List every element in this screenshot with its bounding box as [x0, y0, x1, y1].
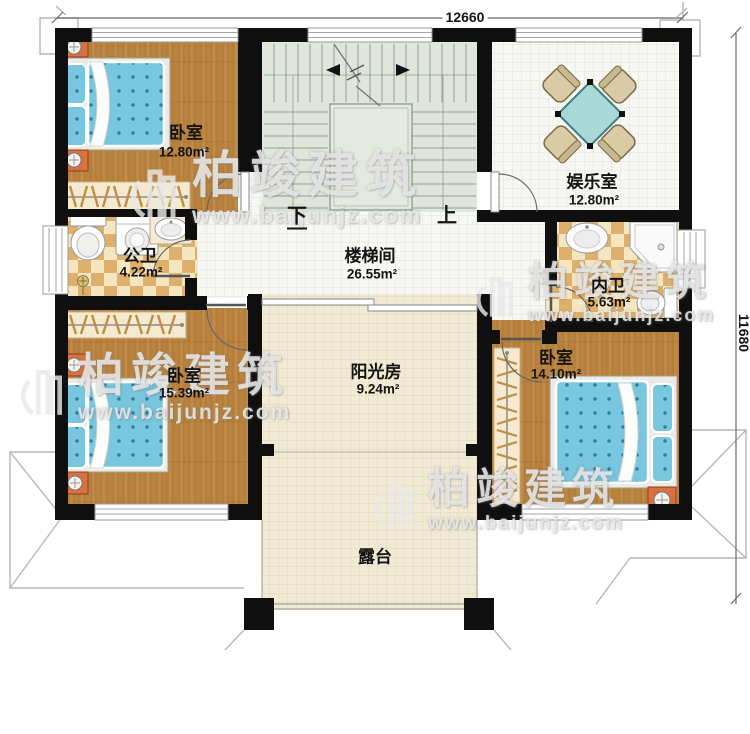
room-area-bedroom-bottom-left: 15.39m² [159, 386, 209, 400]
stair-up-label: 上 [437, 206, 457, 226]
dimension-top: 12660 [443, 10, 488, 24]
title-block: 三层平面图 1:100 本层建筑面积：109.48m² 层高：3.45m 柏竣建… [0, 650, 750, 734]
room-area-public-bath: 4.22m² [120, 265, 163, 279]
room-area-bedroom-bottom-right: 14.10m² [531, 367, 581, 381]
stair-down-label: 下 [287, 207, 307, 230]
wardrobe-bottom-right [494, 348, 520, 503]
wardrobe-top-left [62, 182, 190, 212]
room-label-private-bath: 内卫 [591, 278, 625, 295]
bay-window-right [677, 230, 705, 288]
room-area-sunroom: 9.24m² [357, 382, 400, 396]
room-area-bedroom-top-left: 12.80m² [159, 145, 209, 159]
room-label-bedroom-bottom-right: 卧室 [539, 350, 573, 367]
dimension-right: 11680 [737, 311, 750, 355]
room-label-public-bath: 公卫 [123, 248, 157, 265]
wardrobe-bottom-left [62, 312, 186, 338]
room-area-stairwell: 26.55m² [347, 267, 397, 281]
room-label-bedroom-bottom-left: 卧室 [167, 368, 201, 385]
terrace-column-right [464, 598, 494, 630]
room-label-entertainment: 娱乐室 [567, 174, 618, 191]
room-area-entertainment: 12.80m² [569, 193, 619, 207]
room-label-terrace: 露台 [358, 549, 392, 566]
room-label-bedroom-top-left: 卧室 [169, 125, 203, 142]
room-area-private-bath: 5.63m² [588, 295, 631, 309]
floor-plan-page: 柏竣建筑 www.baijunjz.com 柏竣建筑 www.baijunjz.… [0, 0, 750, 734]
room-label-stairwell: 楼梯间 [345, 248, 396, 265]
terrace-column-left [244, 598, 274, 630]
room-label-sunroom: 阳光房 [351, 364, 402, 381]
